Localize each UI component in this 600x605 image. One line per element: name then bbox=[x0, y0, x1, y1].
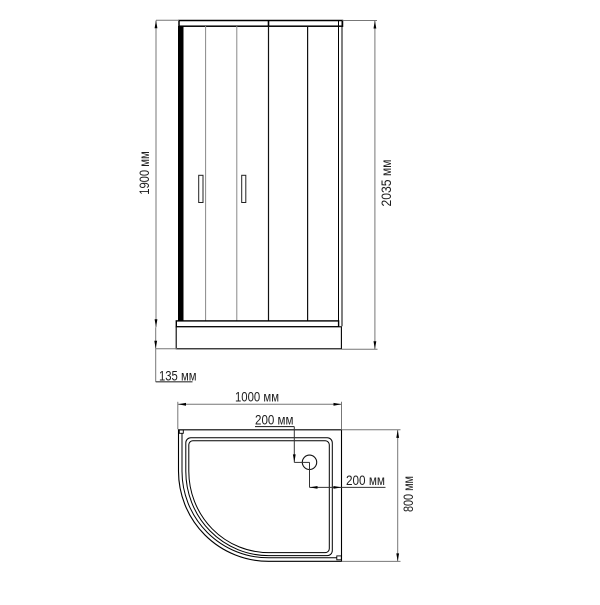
svg-text:200 мм: 200 мм bbox=[255, 411, 294, 427]
svg-text:800 мм: 800 мм bbox=[400, 476, 416, 512]
svg-text:1900 мм: 1900 мм bbox=[136, 151, 152, 195]
svg-text:1000 мм: 1000 мм bbox=[235, 389, 279, 405]
svg-text:200 мм: 200 мм bbox=[346, 472, 385, 488]
svg-text:2035 мм: 2035 мм bbox=[378, 160, 394, 207]
svg-text:135 мм: 135 мм bbox=[159, 368, 197, 384]
